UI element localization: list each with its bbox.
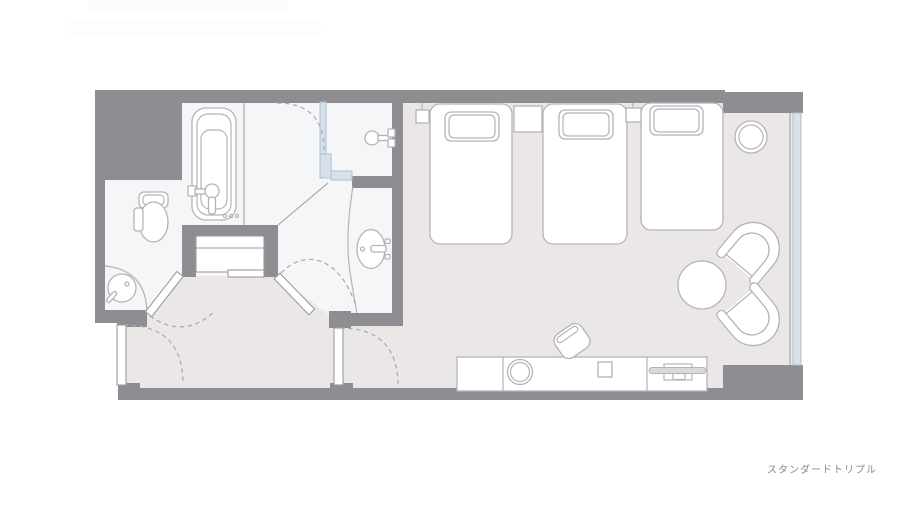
kettle (508, 360, 533, 385)
floor-lamp (735, 121, 767, 153)
vanity-counter (196, 236, 264, 277)
floor-plan-svg (0, 0, 900, 506)
bed-1 (430, 104, 512, 244)
room-type-caption: スタンダードトリプル (767, 461, 877, 476)
floor-plan-image: スタンダードトリプル (0, 0, 900, 506)
window (793, 113, 801, 365)
desk-tray (598, 362, 612, 377)
bedroom-door (334, 328, 343, 385)
round-table (678, 261, 726, 309)
bed-3 (641, 103, 723, 230)
nightstand (514, 106, 542, 132)
entry-door (117, 325, 126, 385)
bed-2 (543, 104, 627, 244)
